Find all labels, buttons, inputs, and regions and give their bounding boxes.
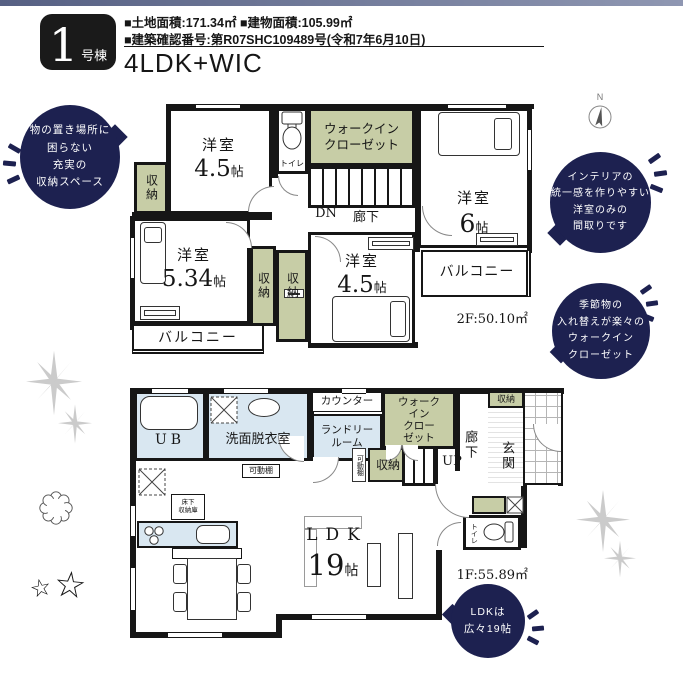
washing-machine-icon [210, 396, 238, 429]
underfloor-storage-label: 床下 収納庫 [172, 496, 204, 518]
entrance-label: 玄関 [496, 440, 516, 472]
movable-shelf-label: 可動棚 [243, 465, 279, 477]
desk-icon [368, 237, 414, 250]
dining-table-icon [187, 558, 237, 620]
desk-icon [140, 306, 180, 320]
sink-icon [248, 398, 280, 417]
closet-label: 収納 [370, 456, 406, 474]
closet-label: 収納 [490, 393, 522, 406]
hallway-label: 廊下 [344, 210, 388, 226]
emphasis-mark [646, 300, 659, 307]
stairs-dn-label: DN [310, 206, 342, 222]
floor-hatch-icon [138, 468, 166, 501]
bathtub-icon [140, 396, 198, 430]
washroom-label: 洗面脱衣室 [210, 426, 306, 454]
emphasis-mark [532, 625, 544, 631]
room-label: 洋室 4.5帖 [172, 132, 266, 188]
window [527, 130, 532, 170]
entry-hatch-icon [506, 496, 524, 519]
door-arc [437, 522, 461, 546]
window [312, 614, 366, 620]
window [448, 104, 506, 109]
emphasis-mark [654, 170, 668, 177]
chair-icon [237, 564, 251, 584]
ub-label: UB [140, 428, 200, 454]
closet-label: 収納 [251, 256, 275, 316]
sparkle-icon [58, 404, 92, 449]
toilet-icon [482, 520, 514, 549]
shoe-cabinet [472, 496, 506, 514]
toilet-label: トイレ [276, 158, 308, 170]
flower-icon [38, 490, 74, 531]
stove-icon [140, 523, 168, 552]
door-arc [313, 457, 339, 483]
chair-icon [173, 564, 187, 584]
chair-icon [237, 592, 251, 612]
emphasis-mark [7, 174, 21, 184]
room-label: 洋室 6帖 [430, 188, 518, 240]
pillow-icon [494, 118, 512, 150]
wic-2f-label: ウォークイン クローゼット [311, 111, 412, 163]
badge-suffix: 号棟 [81, 48, 107, 65]
ldk-label: LDK 19帖 [298, 516, 368, 592]
toilet-label: トイレ [467, 518, 479, 548]
wall-segment [436, 550, 442, 620]
door-arc [435, 484, 469, 518]
sparkle-icon [604, 540, 636, 583]
floor-plan-2f: 洋室 4.5帖 洋室 6帖 洋室 5.34帖 洋室 4.5帖 ウォークイン クロ… [130, 104, 532, 356]
pillow-icon [144, 227, 162, 243]
top-accent-bar [0, 0, 683, 6]
callout-ldk: LDKは 広々19帖 [451, 584, 525, 658]
counter-label: カウンター [314, 394, 380, 410]
window [168, 632, 222, 638]
callout-interior: インテリアの 統一感を作りやすい 洋室のみの 間取りです [550, 152, 651, 253]
window [224, 388, 268, 394]
floor-area-2f: 2F:50.10㎡ [380, 308, 528, 327]
kitchen-sink-icon [196, 525, 230, 544]
emphasis-mark [648, 153, 662, 165]
window [130, 568, 136, 610]
chair-icon [173, 592, 187, 612]
closet-label: 収納 [138, 166, 164, 210]
door-arc [278, 176, 298, 196]
emphasis-mark [650, 184, 664, 194]
tv-board-icon [367, 543, 381, 587]
emphasis-mark [8, 143, 22, 154]
wic-1f-label: ウォーク イン クロー ゼット [384, 393, 454, 447]
star-icon: ☆ [52, 562, 88, 607]
stairs-down-2f [308, 166, 415, 208]
badge-number: 1 [49, 26, 78, 65]
flyer-page: 1 号棟 ■土地面積:171.34㎡ ■建物面積:105.99㎡ ■建築確認番号… [0, 0, 683, 686]
balcony-label: バルコニー [142, 328, 254, 350]
emphasis-mark [3, 160, 16, 166]
laundry-label: ランドリー ルーム [314, 418, 380, 456]
building-number-badge: 1 号棟 [40, 14, 116, 70]
header-rule [124, 46, 544, 47]
plan-type-title: 4LDK+WIC [124, 48, 263, 79]
balcony-label: バルコニー [433, 260, 521, 286]
toilet-icon [279, 111, 305, 156]
star-icon: ☆ [27, 572, 54, 605]
window [152, 388, 188, 394]
window [196, 104, 240, 109]
window [130, 506, 136, 536]
movable-shelf-label: 可動棚 [353, 450, 365, 480]
floor-area-1f: 1F:55.89㎡ [380, 564, 528, 583]
callout-storage: 物の置き場所に 困らない 充実の 収納スペース [20, 105, 120, 209]
room-label: 洋室 5.34帖 [146, 242, 242, 298]
callout-wic: 季節物の 入れ替えが楽々の ウォークイン クローゼット [552, 283, 650, 379]
room-label: 洋室 4.5帖 [318, 250, 406, 302]
compass-icon [586, 101, 614, 136]
stairs-up-label: UP [438, 454, 466, 470]
closet-label: 収納 [280, 256, 304, 316]
window [130, 238, 135, 278]
emphasis-mark [640, 284, 653, 295]
